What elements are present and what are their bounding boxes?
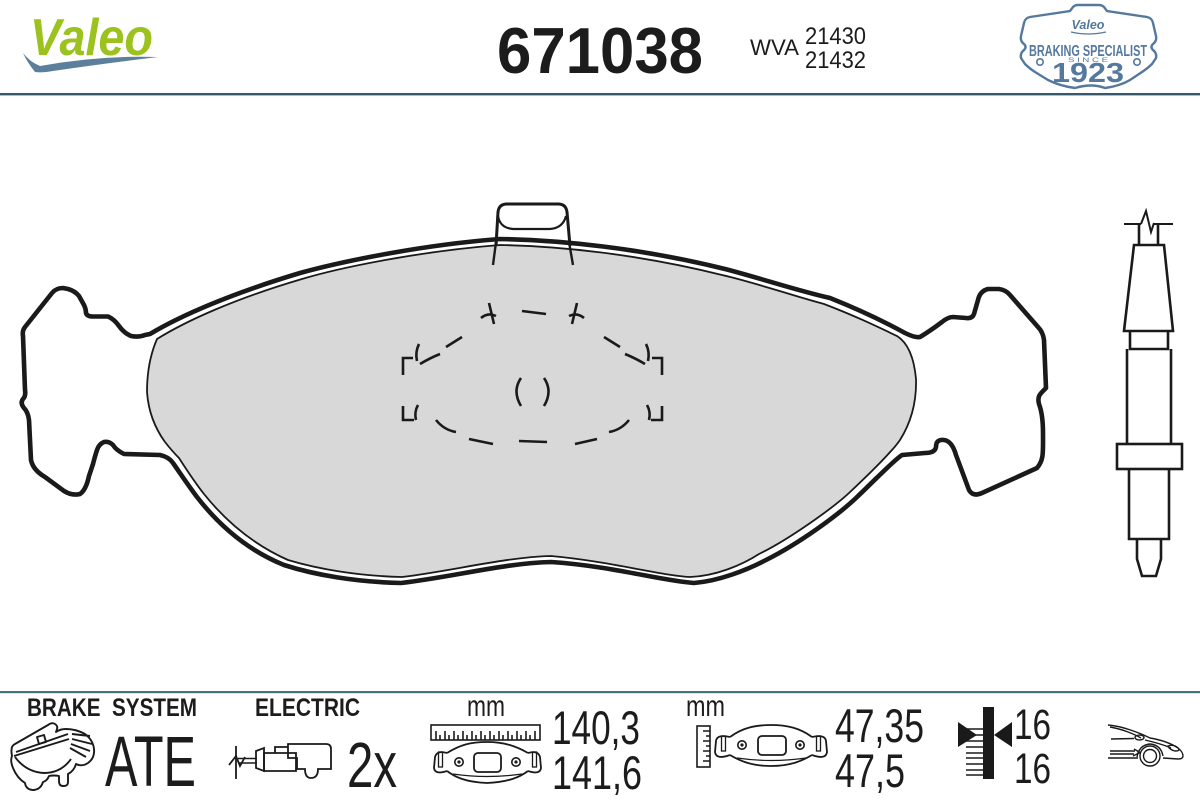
svg-text:21432: 21432 bbox=[805, 47, 866, 74]
svg-text:mm: mm bbox=[686, 690, 725, 723]
svg-text:16: 16 bbox=[1014, 745, 1051, 793]
svg-text:21430: 21430 bbox=[805, 23, 866, 50]
svg-text:ATE: ATE bbox=[105, 723, 196, 800]
svg-text:mm: mm bbox=[467, 690, 505, 723]
svg-text:47,5: 47,5 bbox=[835, 744, 905, 797]
svg-text:141,6: 141,6 bbox=[552, 746, 642, 799]
svg-text:16: 16 bbox=[1014, 701, 1051, 749]
svg-text:BRAKE SYSTEM: BRAKE SYSTEM bbox=[27, 694, 197, 722]
svg-text:ELECTRIC: ELECTRIC bbox=[255, 694, 360, 722]
svg-text:Valeo: Valeo bbox=[1072, 18, 1105, 32]
svg-text:671038: 671038 bbox=[497, 14, 703, 87]
svg-text:1923: 1923 bbox=[1052, 57, 1124, 88]
svg-text:2x: 2x bbox=[347, 729, 397, 800]
svg-text:WVA: WVA bbox=[750, 35, 799, 60]
